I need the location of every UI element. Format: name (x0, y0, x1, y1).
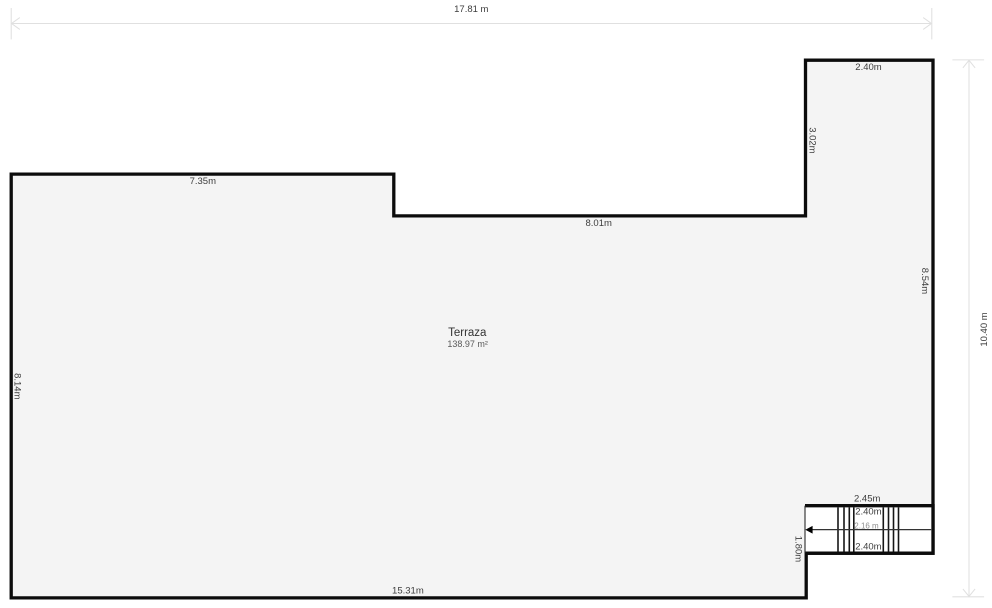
svg-text:8.14m: 8.14m (12, 373, 23, 399)
svg-text:10.40 m: 10.40 m (979, 312, 990, 346)
svg-text:15.31m: 15.31m (392, 586, 424, 597)
svg-text:2.45m: 2.45m (854, 493, 880, 504)
svg-text:3.02m: 3.02m (807, 127, 818, 153)
svg-text:2.40m: 2.40m (855, 62, 881, 73)
svg-text:2.16 m: 2.16 m (854, 521, 879, 530)
svg-text:138.97 m²: 138.97 m² (447, 339, 488, 349)
svg-text:8.54m: 8.54m (919, 268, 930, 294)
svg-text:2.40m: 2.40m (855, 542, 881, 553)
svg-text:Terraza: Terraza (448, 327, 487, 339)
svg-text:8.01m: 8.01m (585, 218, 611, 229)
svg-text:17.81 m: 17.81 m (454, 4, 488, 15)
svg-text:7.35m: 7.35m (190, 176, 216, 187)
svg-text:1.80m: 1.80m (793, 536, 804, 562)
svg-text:2.40m: 2.40m (855, 506, 881, 517)
